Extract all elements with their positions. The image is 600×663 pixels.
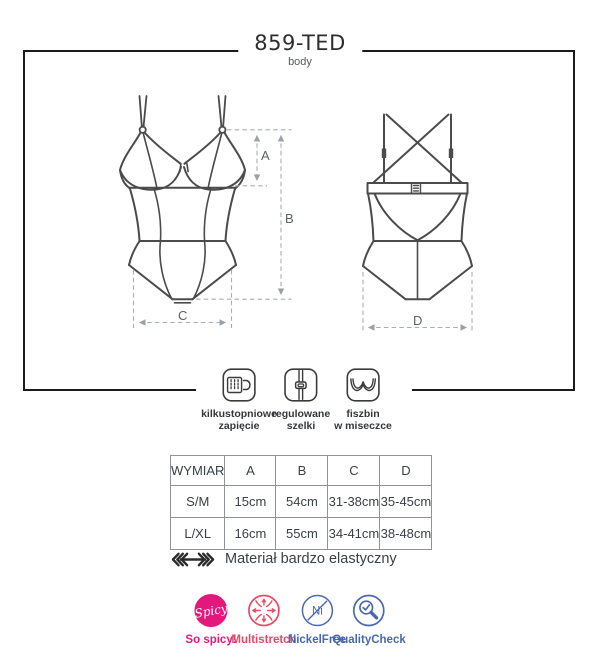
spicy-badge-icon: Spicy (194, 594, 227, 627)
badge-so-spicy: Spicy So spicy! (185, 594, 236, 646)
hook-clasp (412, 184, 421, 194)
feature-label: regulowane (272, 408, 330, 420)
dim-label-c: C (178, 308, 187, 323)
col-header-c: C (328, 456, 380, 486)
stretch-arrows-icon (170, 552, 216, 567)
feature-label: szelki (272, 420, 330, 432)
dim-label-d: D (413, 313, 422, 328)
title-block: 859-TED body (238, 31, 362, 69)
col-header-a: A (225, 456, 276, 486)
product-size-chart: 859-TED body (0, 0, 600, 663)
size-cell: S/M (171, 486, 225, 518)
table-row-lxl: L/XL 16cm 55cm 34-41cm 38-48cm (171, 518, 432, 550)
feature-label: fiszbin (334, 408, 392, 420)
col-header-d: D (380, 456, 432, 486)
nickel-free-icon: Ni (301, 594, 334, 627)
table-row-sm: S/M 15cm 54cm 31-38cm 35-45cm (171, 486, 432, 518)
col-header-wymiar: WYMIAR (171, 456, 225, 486)
size-cell: L/XL (171, 518, 225, 550)
spicy-circle-text: Spicy (193, 601, 228, 621)
table-header-row: WYMIAR A B C D (171, 456, 432, 486)
back-view-drawing (363, 115, 472, 334)
page-subtitle: body (254, 56, 346, 69)
feature-label: zapięcie (201, 420, 277, 432)
adjustable-straps-icon (284, 368, 318, 402)
feature-adjustable-straps: regulowane szelki (272, 368, 330, 432)
badge-label: QualityCheck (332, 634, 406, 646)
feature-underwire-cup: fiszbin w miseczce (334, 368, 392, 432)
hook-closure-icon (222, 368, 256, 402)
feature-label: kilkustopniowe (201, 408, 277, 420)
col-header-b: B (276, 456, 328, 486)
value-cell: 55cm (276, 518, 328, 550)
strap-slider-left (382, 149, 386, 159)
feature-icons-row: kilkustopniowe zapięcie regulowane szelk… (196, 368, 412, 436)
value-cell: 35-45cm (380, 486, 432, 518)
quality-check-icon (353, 594, 386, 627)
badge-label: So spicy! (185, 634, 236, 646)
page-title: 859-TED (254, 31, 346, 55)
feature-hook-closure: kilkustopniowe zapięcie (201, 368, 277, 432)
dim-label-b: B (285, 211, 294, 226)
dim-label-a: A (261, 148, 270, 163)
size-table: WYMIAR A B C D S/M 15cm 54cm 31-38cm 35-… (170, 455, 432, 550)
multistretch-icon (247, 594, 280, 627)
feature-label: w miseczce (334, 420, 392, 432)
value-cell: 38-48cm (380, 518, 432, 550)
value-cell: 34-41cm (328, 518, 380, 550)
underwire-cup-icon (346, 368, 380, 402)
badge-label: Multistretch (231, 634, 296, 646)
badge-quality-check: QualityCheck (332, 594, 406, 646)
value-cell: 15cm (225, 486, 276, 518)
material-note: Materiał bardzo elastyczny (170, 551, 397, 567)
front-view-drawing (120, 96, 292, 328)
value-cell: 31-38cm (328, 486, 380, 518)
material-note-text: Materiał bardzo elastyczny (225, 551, 397, 567)
badge-multistretch: Multistretch (231, 594, 296, 646)
value-cell: 54cm (276, 486, 328, 518)
value-cell: 16cm (225, 518, 276, 550)
strap-slider-right (449, 149, 453, 159)
